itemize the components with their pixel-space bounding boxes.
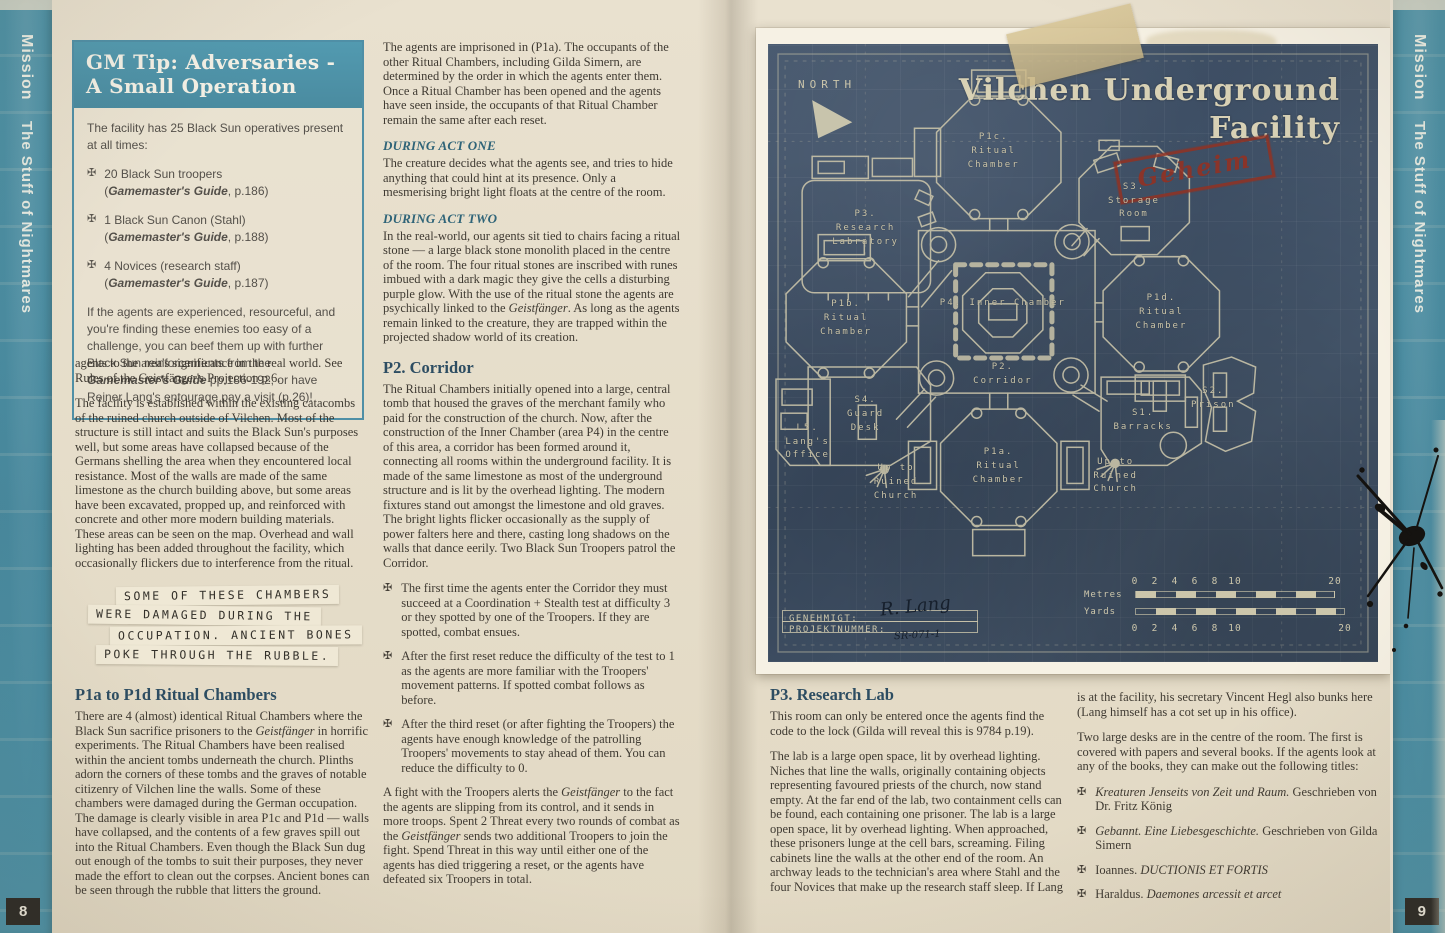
- blueprint-map: NORTH Vilchen Underground Facility Gehei…: [768, 44, 1378, 662]
- typewriter-line: POKE THROUGH THE RUBBLE.: [96, 645, 338, 666]
- room-label-s4: S4. Guard Desk: [847, 394, 884, 436]
- book-spread: { "icons": { "bullet_cross": "✠" }, "lef…: [0, 0, 1445, 933]
- paragraph: The agents are imprisoned in (P1a). The …: [383, 40, 682, 127]
- room-label-p1a: P1a. Ritual Chamber: [973, 446, 1025, 488]
- paragraph: agents to the area's significance in the…: [75, 356, 367, 385]
- maltese-cross-icon: ✠: [383, 581, 392, 639]
- paragraph: This room can only be entered once the a…: [770, 709, 1065, 738]
- left-edge-band: Mission The Stuff of Nightmares 8: [0, 0, 52, 933]
- act-two-heading: DURING ACT TWO: [383, 211, 682, 226]
- gm-tip-bullet: ✠ 20 Black Sun troopers (Gamemaster's Gu…: [87, 166, 349, 200]
- book-title: Daemones arcessit et arcet: [1147, 887, 1282, 901]
- maltese-cross-icon: ✠: [1077, 887, 1086, 902]
- book-title-ref: Gamemaster's Guide: [108, 230, 228, 244]
- maltese-cross-icon: ✠: [87, 258, 96, 292]
- gm-tip-bullet: ✠ 4 Novices (research staff) (Gamemaster…: [87, 258, 349, 292]
- metres-bar: Metres: [1135, 591, 1335, 598]
- paragraph: The Ritual Chambers initially opened int…: [383, 382, 682, 571]
- room-label-p3: P3. Research Labratory: [832, 208, 899, 250]
- page-number-left: 8: [6, 898, 40, 925]
- geistfanger-term: Geistfänger: [401, 829, 460, 843]
- left-sidebar-vertical-text: Mission The Stuff of Nightmares: [17, 34, 35, 314]
- book-titles-list: ✠ Kreaturen Jenseits von Zeit und Raum. …: [1077, 785, 1387, 902]
- paragraph: is at the facility, his secretary Vincen…: [1077, 690, 1387, 719]
- room-label-s1: S1. Barracks: [1113, 407, 1172, 435]
- list-item: ✠ Ioannes. DUCTIONIS ET FORTIS: [1077, 863, 1387, 878]
- paragraph: In the real-world, our agents sit tied t…: [383, 229, 682, 345]
- north-label: NORTH: [798, 78, 856, 91]
- maltese-cross-icon: ✠: [1077, 863, 1086, 878]
- ref-page: , p.186): [228, 184, 269, 198]
- maltese-cross-icon: ✠: [87, 212, 96, 246]
- book-title: Gebannt. Eine Liebesgeschichte.: [1095, 824, 1259, 838]
- yards-ticks: 0 2 4 6 8 10 20: [1128, 623, 1343, 635]
- map-scale: 0 2 4 6 8 10 20 Metres Yards 0 2 4 6 8 1…: [1128, 576, 1343, 640]
- book-entry: Haraldus. Daemones arcessit et arcet: [1095, 887, 1281, 902]
- left-page-column-2: The agents are imprisoned in (P1a). The …: [383, 40, 682, 922]
- section-heading-p2: P2. Corridor: [383, 359, 682, 377]
- book-entry: Gebannt. Eine Liebesgeschichte. Geschrie…: [1095, 824, 1387, 853]
- list-item-text: After the third reset (or after fighting…: [401, 717, 682, 775]
- list-item: ✠ After the first reset reduce the diffi…: [383, 649, 682, 707]
- list-item: ✠ Kreaturen Jenseits von Zeit und Raum. …: [1077, 785, 1387, 814]
- approval-block: GENEHMIGT: PROJEKTNUMMER: R. Lang SR-071…: [782, 610, 978, 633]
- maltese-cross-icon: ✠: [1077, 785, 1086, 814]
- yards-bar: Yards: [1135, 608, 1345, 615]
- p1a-section: P1a to P1d Ritual Chambers There are 4 (…: [75, 686, 371, 918]
- yards-label: Yards: [1084, 607, 1116, 617]
- typewriter-line: OCCUPATION. ANCIENT BONES: [110, 625, 362, 645]
- book-title: Kreaturen Jenseits von Zeit und Raum.: [1095, 785, 1289, 799]
- list-item: ✠ Haraldus. Daemones arcessit et arcet: [1077, 887, 1387, 902]
- gm-tip-bullet: ✠ 1 Black Sun Canon (Stahl) (Gamemaster'…: [87, 212, 349, 246]
- room-label-p2: P2. Corridor: [973, 361, 1032, 389]
- right-sidebar-vertical-text: Mission The Stuff of Nightmares: [1410, 34, 1428, 314]
- room-label-s2: S2. Prison: [1191, 385, 1236, 413]
- geistfanger-term: Geistfänger: [509, 301, 568, 315]
- stairs-label-left: Up to Ruined Church: [874, 462, 919, 504]
- room-label-p1c: P1c. Ritual Chamber: [968, 131, 1020, 173]
- right-page-column-1: P3. Research Lab This room can only be e…: [770, 686, 1065, 922]
- right-sidebar-chapter-label: The Stuff of Nightmares: [1410, 121, 1428, 314]
- room-label-l5: L5. Lang's Office: [785, 422, 830, 464]
- maltese-cross-icon: ✠: [1077, 824, 1086, 853]
- typewriter-line: WERE DAMAGED DURING THE: [88, 605, 321, 627]
- blueprint-sheet: NORTH Vilchen Underground Facility Gehei…: [756, 28, 1390, 674]
- list-item-text: After the first reset reduce the difficu…: [401, 649, 682, 707]
- gm-tip-bullet-text: 4 Novices (research staff): [104, 259, 241, 273]
- paragraph: The lab is a large open space, lit by ov…: [770, 749, 1065, 894]
- room-label-s3: S3. Storage Room: [1108, 181, 1160, 223]
- book-title-ref: Gamemaster's Guide: [108, 276, 228, 290]
- maltese-cross-icon: ✠: [383, 649, 392, 707]
- gm-tip-bullet-text: 1 Black Sun Canon (Stahl): [104, 213, 245, 227]
- left-sidebar-chapter-label: The Stuff of Nightmares: [17, 121, 35, 314]
- paragraph: A fight with the Troopers alerts the Gei…: [383, 785, 682, 887]
- north-arrow-icon: [812, 100, 852, 138]
- maltese-cross-icon: ✠: [87, 166, 96, 200]
- act-one-heading: DURING ACT ONE: [383, 138, 682, 153]
- room-label-p4: P4. Inner Chamber: [940, 297, 1066, 311]
- corridor-rules-list: ✠ The first time the agents enter the Co…: [383, 581, 682, 775]
- list-item: ✠ Gebannt. Eine Liebesgeschichte. Geschr…: [1077, 824, 1387, 853]
- book-entry: Kreaturen Jenseits von Zeit und Raum. Ge…: [1095, 785, 1387, 814]
- stairs-label-right: Up to Ruined Church: [1093, 456, 1138, 498]
- book-entry: Ioannes. DUCTIONIS ET FORTIS: [1095, 863, 1268, 878]
- paragraph: There are 4 (almost) identical Ritual Ch…: [75, 709, 371, 898]
- metres-label: Metres: [1084, 590, 1123, 600]
- ref-page: , p.187): [228, 276, 269, 290]
- list-item: ✠ After the third reset (or after fighti…: [383, 717, 682, 775]
- list-item: ✠ The first time the agents enter the Co…: [383, 581, 682, 639]
- section-heading-p1a: P1a to P1d Ritual Chambers: [75, 686, 371, 704]
- left-sidebar-section-label: Mission: [17, 34, 35, 101]
- left-page-column-1: agents to the area's significance in the…: [75, 356, 367, 580]
- gm-tip-title-line2: A Small Operation: [86, 74, 350, 98]
- geistfanger-term: Geistfänger: [256, 724, 315, 738]
- gm-tip-header: GM Tip: Adversaries - A Small Operation: [74, 42, 362, 108]
- metres-ticks: 0 2 4 6 8 10 20: [1128, 576, 1343, 588]
- maltese-cross-icon: ✠: [383, 717, 392, 775]
- right-page-column-2: is at the facility, his secretary Vincen…: [1077, 690, 1387, 922]
- section-heading-p3: P3. Research Lab: [770, 686, 1065, 704]
- book-title: DUCTIONIS ET FORTIS: [1140, 863, 1268, 877]
- typewriter-note: SOME OF THESE CHAMBERS WERE DAMAGED DURI…: [88, 586, 398, 666]
- paragraph: Two large desks are in the centre of the…: [1077, 730, 1387, 774]
- gm-tip-bullet-text: 20 Black Sun troopers: [104, 167, 222, 181]
- typewriter-line: SOME OF THESE CHAMBERS: [116, 585, 340, 606]
- geistfanger-term: Geistfänger: [561, 785, 620, 799]
- room-label-p1d: P1d. Ritual Chamber: [1135, 292, 1187, 334]
- paragraph: The creature decides what the agents see…: [383, 156, 682, 200]
- page-fold-shadow: [698, 0, 758, 933]
- ref-page: , p.188): [228, 230, 269, 244]
- list-item-text: The first time the agents enter the Corr…: [401, 581, 682, 639]
- right-edge-band: Mission The Stuff of Nightmares 9: [1393, 0, 1445, 933]
- gm-tip-intro: The facility has 25 Black Sun operatives…: [87, 120, 349, 154]
- gm-tip-title-line1: GM Tip: Adversaries -: [86, 50, 350, 74]
- right-sidebar-section-label: Mission: [1410, 34, 1428, 101]
- room-label-p1b: P1b. Ritual Chamber: [820, 298, 872, 340]
- book-title-ref: Gamemaster's Guide: [108, 184, 228, 198]
- paragraph: The facility is established within the e…: [75, 396, 367, 570]
- page-number-right: 9: [1405, 898, 1439, 925]
